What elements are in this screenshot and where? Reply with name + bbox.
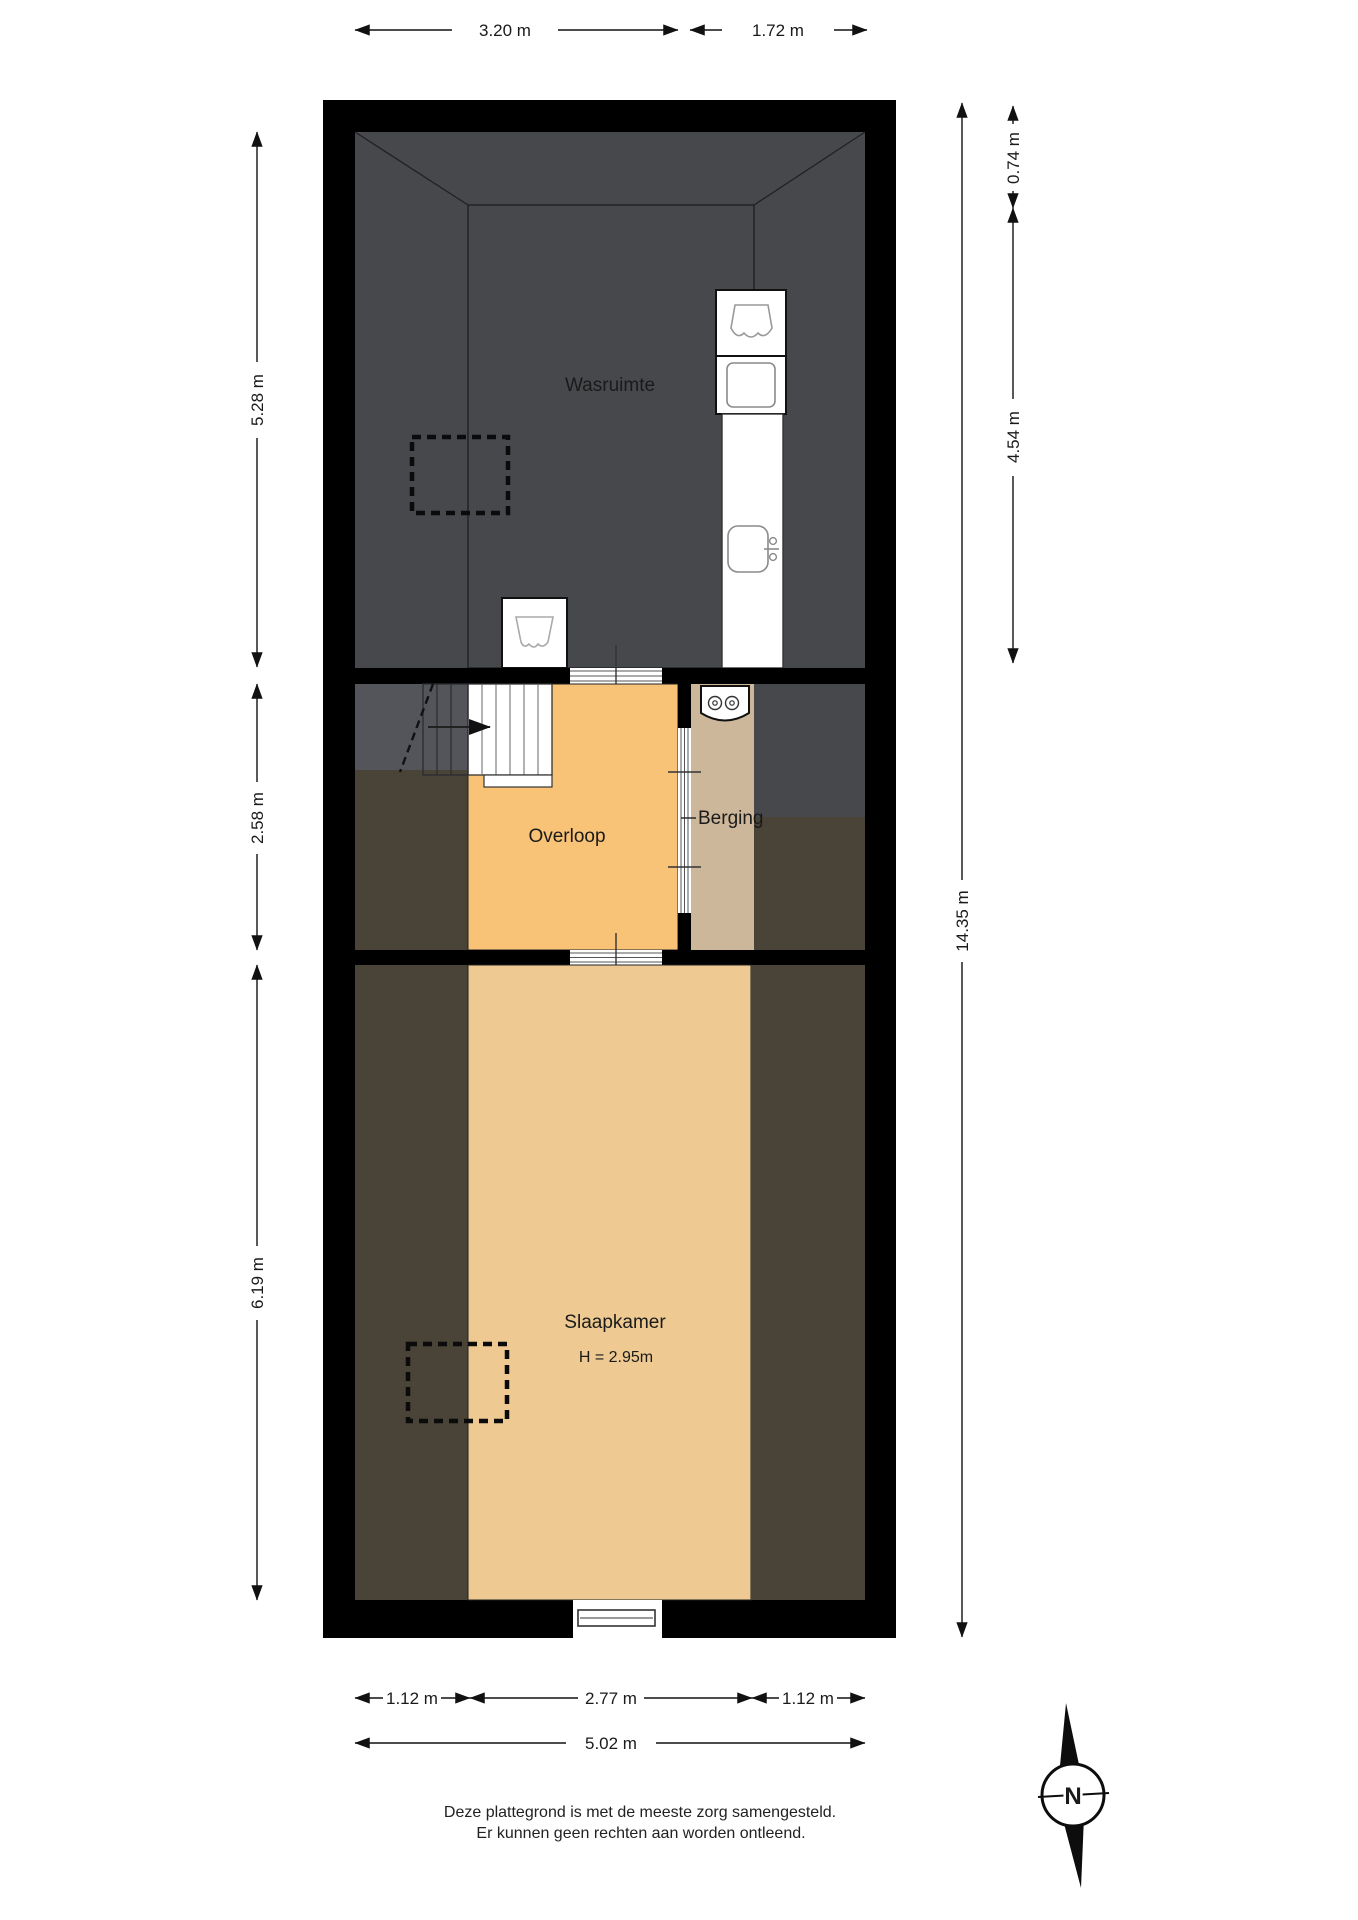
washbasin-icon [502, 598, 567, 668]
dryer-icon [716, 356, 786, 414]
deadspace-bottom-left [355, 965, 468, 1600]
slaapkamer-floor [468, 965, 751, 1600]
dim-right-1: 0.74 m [1004, 132, 1023, 184]
section-overloop-berging: Overloop Berging [355, 668, 865, 950]
compass-north-label: N [1064, 1783, 1081, 1810]
dim-left-1: 5.28 m [248, 374, 267, 426]
footer-line-1: Deze plattegrond is met de meeste zorg s… [444, 1804, 836, 1821]
dim-bottom-1: 1.12 m [386, 1689, 438, 1708]
dim-bottom-2: 2.77 m [585, 1689, 637, 1708]
floorplan-drawing: Wasruimte [0, 0, 1358, 1920]
floorplan-page: Wasruimte [0, 0, 1358, 1920]
washing-machine-icon [716, 290, 786, 356]
deadspace-mid-left-brown [355, 770, 468, 950]
compass: N [1038, 1703, 1109, 1888]
attic-deadspace-top [355, 132, 865, 668]
dim-right-3: 14.35 m [953, 890, 972, 951]
deadspace-mid-right-gray [754, 684, 865, 817]
section-slaapkamer: Slaapkamer H = 2.95m [355, 965, 865, 1638]
deadspace-bottom-right [751, 965, 865, 1600]
dim-top-1: 3.20 m [479, 21, 531, 40]
footer-line-2: Er kunnen geen rechten aan worden ontlee… [476, 1825, 805, 1842]
dim-left-2: 2.58 m [248, 792, 267, 844]
footer-disclaimer: Deze plattegrond is met de meeste zorg s… [444, 1804, 836, 1842]
dim-right-2: 4.54 m [1004, 411, 1023, 463]
room-height-label: H = 2.95m [579, 1349, 653, 1366]
room-label-overloop: Overloop [528, 826, 605, 847]
dim-top-2: 1.72 m [752, 21, 804, 40]
room-label-berging: Berging [698, 808, 764, 829]
section-wasruimte: Wasruimte [355, 132, 865, 668]
deadspace-mid-right-brown [754, 817, 865, 950]
window-bottom-facade [573, 1600, 662, 1638]
dim-bottom-total: 5.02 m [585, 1734, 637, 1753]
staircase [400, 684, 552, 787]
dim-bottom-3: 1.12 m [782, 1689, 834, 1708]
room-label-slaapkamer: Slaapkamer [564, 1312, 666, 1333]
room-label-wasruimte: Wasruimte [565, 375, 655, 396]
stair-landing-step [484, 775, 552, 787]
boiler-icon [701, 686, 749, 721]
dim-left-3: 6.19 m [248, 1257, 267, 1309]
